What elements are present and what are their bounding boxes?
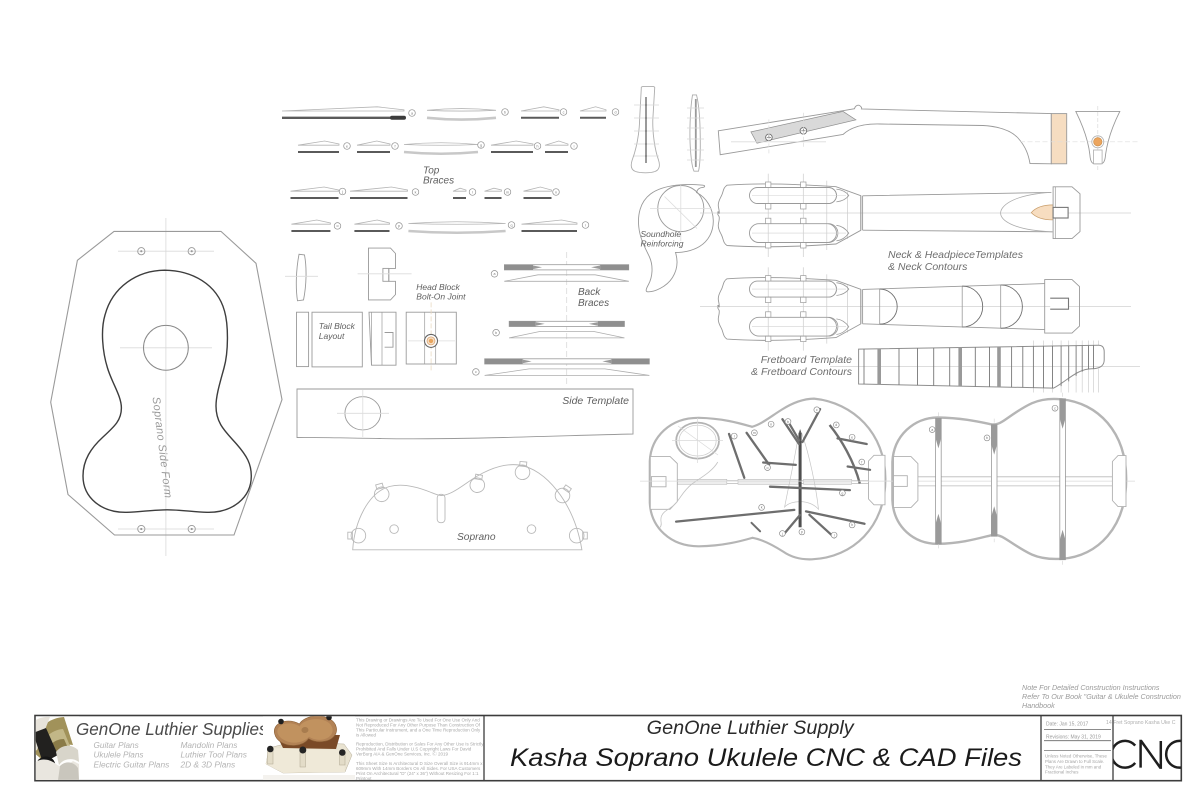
svg-text:2D & 3D Plans: 2D & 3D Plans: [179, 761, 235, 770]
svg-text:p: p: [398, 224, 400, 228]
svg-text:e: e: [851, 436, 853, 440]
svg-text:Printout: Printout: [356, 776, 372, 781]
svg-text:Refer To Our Book "Guitar & Uk: Refer To Our Book "Guitar & Ukulele Cons…: [1022, 692, 1181, 701]
svg-text:Handbook: Handbook: [1022, 701, 1055, 710]
svg-text:a: a: [411, 111, 413, 115]
svg-text:Luthier Tool Plans: Luthier Tool Plans: [181, 751, 247, 760]
svg-text:j: j: [341, 190, 343, 194]
svg-text:c: c: [816, 408, 818, 412]
svg-text:14 Fret Soprano Kasha Uke C: 14 Fret Soprano Kasha Uke C: [1106, 720, 1176, 726]
svg-text:Back: Back: [578, 287, 601, 298]
svg-text:is Allowed: is Allowed: [356, 733, 377, 738]
svg-text:k: k: [415, 190, 417, 194]
svg-text:c: c: [1054, 407, 1056, 411]
svg-text:Braces: Braces: [423, 176, 454, 187]
svg-text:a: a: [494, 272, 496, 276]
svg-text:g: g: [480, 143, 482, 147]
svg-text:c: c: [475, 370, 477, 374]
svg-text:m: m: [753, 431, 756, 435]
svg-text:GenOne Luthier Supply: GenOne Luthier Supply: [647, 718, 856, 739]
svg-text:Fractional Inches: Fractional Inches: [1045, 770, 1079, 775]
svg-text:h: h: [537, 144, 539, 148]
svg-text:Mandolin Plans: Mandolin Plans: [181, 741, 238, 750]
svg-text:j: j: [781, 532, 783, 536]
svg-text:b: b: [787, 420, 789, 424]
svg-text:h: h: [851, 523, 853, 527]
svg-text:Ukulele Plans: Ukulele Plans: [94, 751, 144, 760]
svg-text:n: n: [770, 423, 772, 427]
svg-text:b: b: [504, 110, 506, 114]
svg-text:c: c: [563, 110, 565, 114]
svg-text:Fretboard Template: Fretboard Template: [761, 354, 852, 366]
svg-text:They Are Labeled in mm and: They Are Labeled in mm and: [1045, 764, 1102, 769]
svg-text:& Fretboard Contours: & Fretboard Contours: [751, 366, 853, 378]
svg-text:d: d: [835, 423, 837, 427]
svg-text:Electric Guitar Plans: Electric Guitar Plans: [94, 761, 170, 770]
svg-text:a: a: [931, 428, 933, 432]
svg-text:f: f: [395, 144, 396, 148]
svg-text:VerBurg AIA & GenOne Services,: VerBurg AIA & GenOne Services, Inc. Ⓒ 20…: [356, 751, 449, 758]
svg-text:Layout: Layout: [319, 331, 345, 341]
svg-text:Bolt-On Joint: Bolt-On Joint: [416, 292, 466, 302]
svg-text:Unless Noted Otherwise, These: Unless Noted Otherwise, These: [1045, 754, 1107, 759]
svg-text:g: g: [841, 491, 843, 495]
svg-text:Note For Detailed Construction: Note For Detailed Construction Instructi…: [1022, 683, 1160, 692]
svg-text:f: f: [861, 460, 862, 464]
svg-text:Revisions: May 31, 2019: Revisions: May 31, 2019: [1046, 735, 1101, 741]
svg-text:Neck & HeadpieceTemplates: Neck & HeadpieceTemplates: [888, 249, 1024, 261]
svg-text:Guitar Plans: Guitar Plans: [94, 741, 139, 750]
svg-text:Head Block: Head Block: [416, 282, 460, 292]
svg-text:b: b: [495, 331, 497, 335]
svg-text:Braces: Braces: [578, 298, 609, 309]
svg-text:Tail Block: Tail Block: [319, 321, 356, 331]
svg-text:Print On Architectural “D” (24: Print On Architectural “D” (24” x 36”) W…: [356, 771, 479, 776]
svg-text:e: e: [346, 144, 348, 148]
svg-text:& Neck Contours: & Neck Contours: [888, 261, 968, 273]
svg-text:GenOne Luthier Supplies: GenOne Luthier Supplies: [76, 719, 268, 739]
svg-text:b: b: [986, 436, 988, 440]
svg-text:n: n: [555, 190, 557, 194]
svg-text:d: d: [615, 110, 617, 114]
svg-text:Kasha Soprano Ukulele CNC & CA: Kasha Soprano Ukulele CNC & CAD Files: [510, 744, 1022, 772]
svg-text:o: o: [337, 224, 339, 228]
svg-text:m: m: [506, 190, 509, 194]
svg-text:Plans Are Drawn to Full Scale.: Plans Are Drawn to Full Scale.: [1045, 759, 1104, 764]
svg-text:Soprano: Soprano: [457, 532, 496, 543]
svg-text:Date: Jan 15, 2017: Date: Jan 15, 2017: [1046, 722, 1088, 728]
svg-text:k: k: [761, 506, 763, 510]
svg-text:Reinforcing: Reinforcing: [641, 239, 684, 249]
svg-text:o: o: [767, 466, 769, 470]
svg-text:q: q: [511, 223, 513, 227]
svg-text:Soundhole: Soundhole: [641, 229, 682, 239]
svg-text:p: p: [801, 530, 803, 534]
svg-text:Side Template: Side Template: [562, 395, 629, 407]
